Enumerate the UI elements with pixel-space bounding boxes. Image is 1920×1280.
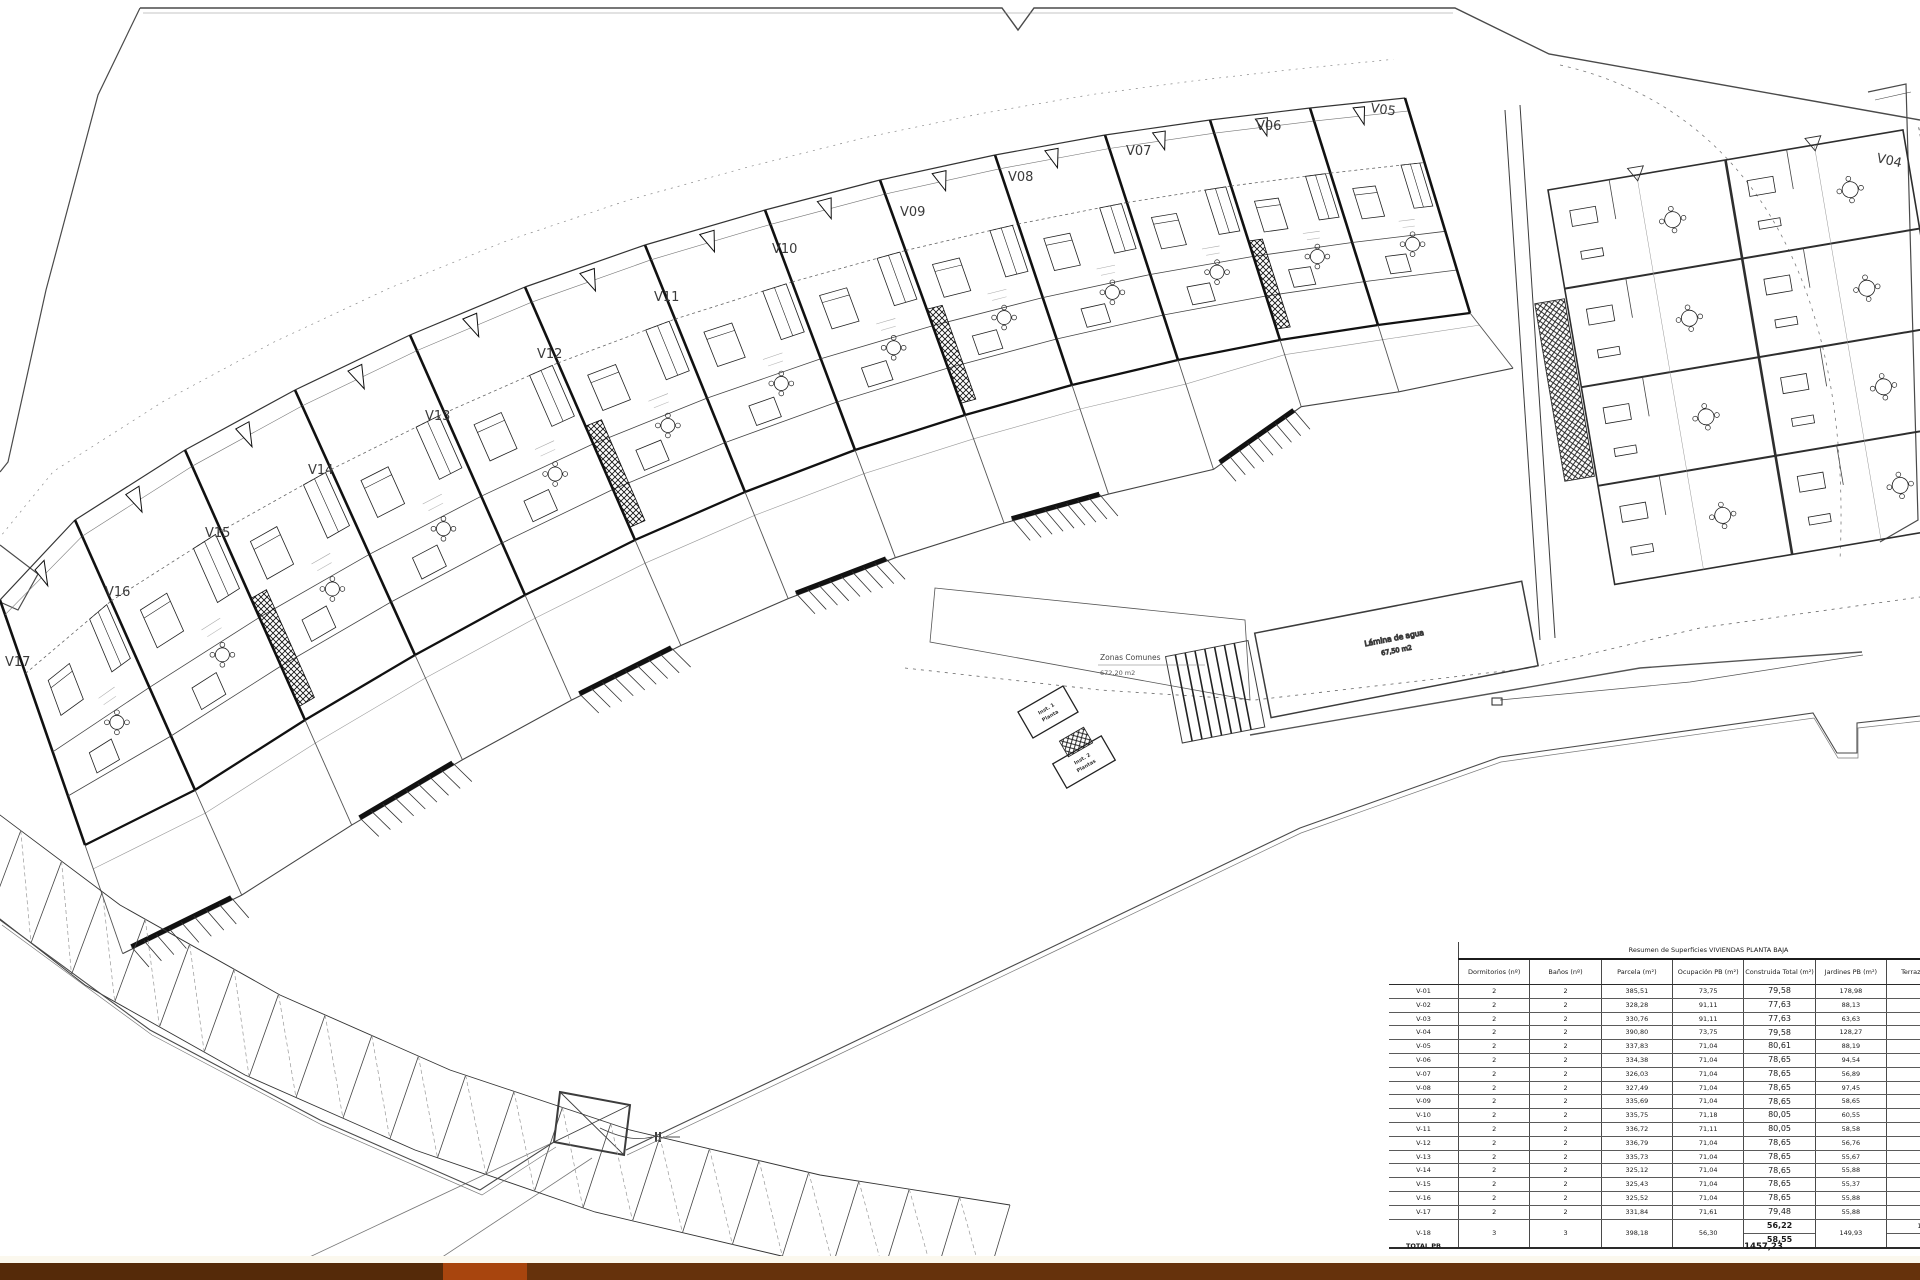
micro-text-hint xyxy=(1202,246,1220,249)
micro-text-hint xyxy=(312,553,331,564)
chair-glyph xyxy=(1849,198,1855,204)
table-row: V-08 2 2 327,49 71,04 78,65 97,45 - xyxy=(1389,1081,1920,1095)
table-row: V-03 2 2 330,76 91,11 77,63 63,63 - xyxy=(1389,1012,1920,1026)
bathroom-divider xyxy=(657,326,677,376)
bed-glyph xyxy=(48,663,83,715)
summary-table: Resumen de Superficies VIVIENDAS PLANTA … xyxy=(1389,942,1920,1249)
dining-table-glyph xyxy=(1406,237,1420,251)
micro-text-hint xyxy=(768,361,783,366)
bathroom-divider xyxy=(205,542,229,596)
chair-glyph xyxy=(330,577,335,582)
unit-street-wall xyxy=(1178,340,1280,360)
pergola-tick xyxy=(1294,410,1310,429)
bed-glyph xyxy=(1764,275,1792,295)
interior-wall xyxy=(593,398,707,444)
dining-table-glyph xyxy=(661,418,675,432)
dining-table-glyph xyxy=(1210,265,1224,279)
micro-text-hint xyxy=(1303,231,1320,233)
dining-table-glyph xyxy=(110,715,124,729)
pool-area-value: 67,50 m2 xyxy=(1381,644,1413,658)
parking-stall-divider xyxy=(782,1172,808,1256)
pergola-tick xyxy=(406,790,425,809)
micro-text-hint xyxy=(1097,265,1115,269)
sofa-glyph xyxy=(89,739,119,773)
chair-glyph xyxy=(1668,206,1674,212)
chair-glyph xyxy=(1685,305,1691,311)
parking-stall-divider xyxy=(633,1137,660,1221)
pergola-tick xyxy=(219,904,236,924)
micro-text-hint xyxy=(423,494,442,504)
chair-glyph xyxy=(451,526,456,531)
pergola-tick xyxy=(579,694,598,713)
entrance-arrow xyxy=(700,230,715,252)
bed-glyph xyxy=(1353,186,1385,219)
table-row: V-01 2 2 385,51 73,75 79,58 178,98 - xyxy=(1389,985,1920,999)
chair-glyph xyxy=(1879,373,1885,379)
dining-table-glyph xyxy=(774,376,788,390)
interior-wall xyxy=(53,687,150,752)
bathroom-divider xyxy=(888,255,905,302)
pergola-tick xyxy=(1034,513,1052,535)
bed-glyph xyxy=(1254,198,1288,232)
footer-bar-orange xyxy=(443,1263,527,1280)
pergola-tick xyxy=(395,797,414,816)
dining-table-glyph xyxy=(1891,476,1909,494)
stair-box-1: Inst. 1 Planta xyxy=(1018,686,1078,738)
interior-wall xyxy=(391,543,502,602)
footer-bar-right xyxy=(527,1263,1920,1280)
chair-glyph xyxy=(1862,275,1868,281)
chair-glyph xyxy=(1688,326,1694,332)
unit-street-wall xyxy=(965,385,1072,415)
interior-wall xyxy=(481,444,593,496)
party-wall xyxy=(1310,108,1378,325)
entrance-arrow xyxy=(463,313,479,336)
chair-glyph xyxy=(1012,315,1017,320)
table-row: V-07 2 2 326,03 71,04 78,65 56,89 - xyxy=(1389,1067,1920,1081)
chair-glyph xyxy=(992,315,997,320)
table-row: V-14 2 2 325,12 71,04 78,65 55,88 - xyxy=(1389,1164,1920,1178)
unit-street-wall xyxy=(745,450,855,492)
garden-divider xyxy=(1280,340,1301,407)
chair-glyph xyxy=(1002,325,1007,330)
chair-glyph xyxy=(891,355,896,360)
site-plan-page: { "plan": { "unit_labels": ["V04","V05",… xyxy=(0,0,1920,1280)
chair-glyph xyxy=(115,710,120,715)
sofa-glyph xyxy=(1775,316,1798,328)
stair-hatch xyxy=(251,590,314,707)
interior-wall xyxy=(1150,256,1253,274)
bed-glyph xyxy=(820,288,859,329)
unit-outer-wall xyxy=(185,390,295,450)
unit-street-wall xyxy=(855,415,965,450)
garden-divider xyxy=(85,845,123,954)
parking-stall-diagonal xyxy=(660,1137,683,1233)
bathroom-divider xyxy=(1215,188,1229,232)
right-apartment-block xyxy=(1515,119,1920,589)
interior-wall xyxy=(171,666,281,736)
parking-stall-divider xyxy=(390,1056,419,1139)
pergola-tick xyxy=(886,559,905,580)
garden-divider xyxy=(1470,313,1513,368)
pergola-tick xyxy=(648,659,667,678)
pergola-tick xyxy=(1229,456,1245,475)
parking-stall-divider xyxy=(71,892,102,975)
unit-label-v05: V05 xyxy=(1369,101,1396,119)
dining-table-glyph xyxy=(548,467,562,481)
pergola-tick xyxy=(1056,506,1074,528)
chair-glyph xyxy=(1837,189,1843,195)
parking-stall-divider xyxy=(296,1015,325,1098)
chair-glyph xyxy=(1697,314,1703,320)
bed-glyph xyxy=(1603,404,1631,424)
micro-text-hint xyxy=(99,687,115,698)
micro-text-hint xyxy=(1399,219,1415,221)
chair-glyph xyxy=(340,587,345,592)
unit-label-v17: V17 xyxy=(5,655,30,670)
interior-wall xyxy=(821,326,933,359)
micro-text-hint xyxy=(1101,272,1115,275)
micro-text-hint xyxy=(763,353,782,360)
chair-glyph xyxy=(1400,242,1405,247)
bathroom-glyph xyxy=(90,605,131,672)
interior-wall xyxy=(502,489,613,543)
bed-glyph xyxy=(361,467,405,518)
bed-pillow-line xyxy=(935,265,962,271)
bathroom-divider xyxy=(1410,164,1423,207)
interior-wall xyxy=(613,443,725,490)
sofa-glyph xyxy=(1631,544,1654,556)
party-wall xyxy=(0,600,85,845)
chair-glyph xyxy=(1705,425,1711,431)
garden-band xyxy=(85,313,1513,954)
chair-glyph xyxy=(1110,300,1115,305)
bed-pillow-line xyxy=(1355,192,1378,195)
pergola-tick xyxy=(875,563,894,584)
chair-glyph xyxy=(769,381,774,386)
dining-table-glyph xyxy=(1680,309,1698,327)
bathroom-divider xyxy=(98,612,121,665)
interior-wall xyxy=(281,602,391,666)
bathroom-divider xyxy=(541,370,563,421)
chair-glyph xyxy=(1887,484,1893,490)
unit-street-wall xyxy=(1072,360,1178,385)
pergola-beam xyxy=(579,648,671,694)
table-row: V-17 2 2 331,84 71,61 79,48 55,88 - xyxy=(1389,1205,1920,1219)
bathroom-divider xyxy=(1001,228,1017,274)
pergola-tick xyxy=(796,593,815,614)
dining-table-glyph xyxy=(997,311,1011,325)
site-boundary-lower xyxy=(0,920,554,1190)
chair-glyph xyxy=(220,642,225,647)
parking-stall-diagonal xyxy=(372,1035,390,1138)
pergola-tick xyxy=(360,818,379,837)
pergola-tick xyxy=(807,589,826,610)
table-row: V-13 2 2 335,73 71,04 78,65 55,67 - xyxy=(1389,1150,1920,1164)
parking-stall-diagonal xyxy=(418,1056,437,1158)
sofa-glyph xyxy=(412,545,446,579)
chair-glyph xyxy=(1315,244,1320,249)
pergola-tick xyxy=(418,783,437,802)
chair-glyph xyxy=(1899,493,1905,499)
chair-glyph xyxy=(1681,215,1687,221)
bed-pillow-line xyxy=(51,671,72,688)
table-body: V-01 2 2 385,51 73,75 79,58 178,98 - V-0… xyxy=(1389,985,1920,1220)
pergola-tick xyxy=(1099,494,1117,516)
parking-stall-diagonal xyxy=(562,1107,583,1207)
parking-stall-divider xyxy=(833,1181,859,1264)
party-wall xyxy=(995,155,1072,385)
zonas-comunes-area: 672,20 m2 xyxy=(1100,669,1135,677)
unit-label-v08: V08 xyxy=(1008,170,1033,185)
chair-glyph xyxy=(553,482,558,487)
chair-glyph xyxy=(563,472,568,477)
table-row: V-12 2 2 336,79 71,04 78,65 56,76 - xyxy=(1389,1136,1920,1150)
interior-wall xyxy=(1820,347,1827,386)
footer-cream-strip xyxy=(0,1256,1920,1263)
parking-stall-divider xyxy=(31,861,62,943)
interior-wall xyxy=(1803,248,1810,287)
unit-street-wall xyxy=(1378,313,1470,325)
chair-glyph xyxy=(543,472,548,477)
unit-label-v15: V15 xyxy=(205,526,230,541)
unit-label-v11: V11 xyxy=(654,290,679,305)
pergola-tick xyxy=(1257,436,1273,455)
table-row: V-16 2 2 325,52 71,04 78,65 55,88 - xyxy=(1389,1191,1920,1205)
table-row: V-09 2 2 335,69 71,04 78,65 58,65 - xyxy=(1389,1095,1920,1109)
unit-label-v10: V10 xyxy=(772,242,797,257)
interior-wall xyxy=(1266,282,1364,296)
micro-text-hint xyxy=(541,449,556,456)
pergola-tick xyxy=(591,688,610,707)
unit-street-wall xyxy=(305,655,415,720)
entrance-arrow xyxy=(1353,107,1364,125)
parking-stall-diagonal xyxy=(709,1149,732,1245)
micro-text-hint xyxy=(317,563,331,571)
micro-text-hint xyxy=(1307,238,1320,240)
sofa-glyph xyxy=(636,440,669,470)
sofa-glyph xyxy=(1758,218,1781,230)
pergola-tick xyxy=(206,910,223,930)
total-label: TOTAL PB xyxy=(1389,1242,1458,1250)
pergola-tick xyxy=(1088,497,1106,519)
unit-label-v06: V06 xyxy=(1256,119,1281,134)
sofa-glyph xyxy=(302,606,336,641)
bed-pillow-line xyxy=(1154,220,1179,224)
parking-stall-divider xyxy=(159,944,189,1027)
pergola-tick xyxy=(231,898,248,918)
parking-stall-diagonal xyxy=(514,1091,534,1191)
pergola-tick xyxy=(660,653,679,672)
pergola-tick xyxy=(1248,443,1264,462)
chair-glyph xyxy=(1672,228,1678,234)
dining-table-glyph xyxy=(1874,378,1892,396)
chair-glyph xyxy=(1896,472,1902,478)
parking-stall-diagonal xyxy=(62,861,72,974)
pergola-tick xyxy=(1275,423,1291,442)
garden-divider xyxy=(745,492,788,599)
chair-glyph xyxy=(1120,290,1125,295)
chair-glyph xyxy=(1659,219,1665,225)
micro-text-hint xyxy=(876,318,895,324)
chair-glyph xyxy=(1692,416,1698,422)
pergola-tick xyxy=(194,916,211,936)
pool-label: Lámina de agua xyxy=(1364,628,1425,648)
garden-divider xyxy=(965,415,1004,523)
table-row: V-15 2 2 325,43 71,04 78,65 55,37 - xyxy=(1389,1178,1920,1192)
chair-glyph xyxy=(115,730,120,735)
pergola-tick xyxy=(1023,516,1041,538)
pergola-tick xyxy=(625,671,644,690)
bed-pillow-line xyxy=(477,420,504,432)
bed-pillow-line xyxy=(591,372,619,383)
entrance-arrow xyxy=(580,268,596,291)
chair-glyph xyxy=(1215,280,1220,285)
chair-glyph xyxy=(1883,395,1889,401)
chair-glyph xyxy=(1908,481,1914,487)
chair-glyph xyxy=(789,381,794,386)
chair-glyph xyxy=(441,516,446,521)
table-row: V-04 2 2 390,80 73,75 79,58 128,27 - xyxy=(1389,1026,1920,1040)
micro-text-hint xyxy=(104,696,116,705)
parking-stall-divider xyxy=(682,1149,709,1233)
bathroom-divider xyxy=(315,479,339,532)
unit-outer-wall xyxy=(75,450,185,520)
chair-glyph xyxy=(1676,317,1682,323)
table-row: V-05 2 2 337,83 71,04 80,61 88,19 - xyxy=(1389,1040,1920,1054)
pergola-tick xyxy=(144,941,161,961)
parking-stall-divider xyxy=(0,831,21,912)
bed-glyph xyxy=(932,258,970,297)
chair-glyph xyxy=(1100,290,1105,295)
sofa-glyph xyxy=(524,489,558,521)
interior-wall xyxy=(1609,180,1616,219)
pergola-tick xyxy=(156,935,173,955)
chair-glyph xyxy=(1410,252,1415,257)
unit-street-wall xyxy=(85,790,195,845)
stair-hatch xyxy=(1249,239,1291,329)
unit-label-v09: V09 xyxy=(900,205,925,220)
interior-wall xyxy=(1253,243,1352,257)
party-wall xyxy=(295,390,415,655)
parking-stall-diagonal xyxy=(611,1124,633,1221)
unit-outer-wall xyxy=(410,287,525,335)
sofa-glyph xyxy=(1289,267,1316,288)
dining-table-glyph xyxy=(887,341,901,355)
sofa-glyph xyxy=(749,397,781,425)
chair-glyph xyxy=(1892,382,1898,388)
bathroom-divider xyxy=(427,421,450,473)
micro-text-hint xyxy=(207,628,221,637)
unit-street-wall xyxy=(1280,325,1378,340)
v18-construida-pb: 56,22 xyxy=(1744,1220,1814,1234)
unit-label-v04: V04 xyxy=(1875,151,1903,171)
parking-stall-diagonal xyxy=(279,994,296,1097)
interior-wall xyxy=(1787,150,1794,189)
micro-text-hint xyxy=(428,503,443,511)
parking-stall-diagonal xyxy=(466,1075,486,1174)
parking-stall-diagonal xyxy=(809,1172,833,1264)
chair-glyph xyxy=(1410,232,1415,237)
unit-street-wall xyxy=(195,720,305,790)
micro-text-hint xyxy=(881,326,896,330)
crossed-square-marker xyxy=(250,1092,652,1280)
chair-glyph xyxy=(1853,287,1859,293)
unit-street-wall xyxy=(525,540,635,595)
table-header-row: Dormitorios (nº) Baños (nº) Parcela (m²)… xyxy=(1389,959,1920,985)
interior-wall xyxy=(369,496,481,554)
parking-stall-divider xyxy=(249,994,278,1077)
bed-glyph xyxy=(1586,305,1614,325)
unit-outer-wall xyxy=(0,520,75,600)
pergola-tick xyxy=(169,928,186,948)
sofa-glyph xyxy=(972,330,1003,355)
interior-wall xyxy=(933,298,1043,326)
pergola-tick xyxy=(863,567,882,588)
parking-stall-diagonal xyxy=(234,969,249,1077)
chair-glyph xyxy=(320,587,325,592)
micro-text-hint xyxy=(202,618,221,630)
parking-stall-diagonal xyxy=(21,831,31,943)
garden-divider xyxy=(1178,360,1213,469)
dining-table-glyph xyxy=(1310,250,1324,264)
entrance-arrow xyxy=(236,422,252,447)
micro-text-hint xyxy=(648,394,667,402)
chair-glyph xyxy=(666,433,671,438)
parking-stall-diagonal xyxy=(190,944,204,1052)
surface-summary-table: Resumen de Superficies VIVIENDAS PLANTA … xyxy=(1389,942,1920,1249)
pergola-tick xyxy=(637,665,656,684)
parking-inner-edge xyxy=(0,800,1010,1205)
dining-table-glyph xyxy=(436,522,450,536)
pergola-tick xyxy=(1238,449,1254,468)
chair-glyph xyxy=(220,662,225,667)
bed-glyph xyxy=(1781,374,1809,394)
parking-stall-diagonal xyxy=(102,892,114,1002)
bed-pillow-line xyxy=(144,601,170,618)
stair-hatch xyxy=(586,420,645,528)
entrance-arrow xyxy=(1045,148,1058,167)
site-boundary xyxy=(0,8,1920,610)
dining-table-glyph xyxy=(1105,285,1119,299)
table-title-row: Resumen de Superficies VIVIENDAS PLANTA … xyxy=(1389,942,1920,959)
interior-wall xyxy=(1043,275,1151,298)
bed-glyph xyxy=(1620,502,1648,522)
chair-glyph xyxy=(1846,176,1852,182)
pergola-tick xyxy=(852,572,871,593)
chair-glyph xyxy=(1870,386,1876,392)
dining-table-glyph xyxy=(1841,180,1859,198)
pergola-tick xyxy=(453,763,472,782)
chair-glyph xyxy=(1875,284,1881,290)
pergola-tick xyxy=(602,682,621,701)
micro-text-hint xyxy=(1206,253,1219,255)
site-boundary-lower-offset xyxy=(2,925,556,1195)
garden-divider xyxy=(525,595,572,700)
unit-label-v14: V14 xyxy=(308,463,333,478)
pergola-tick xyxy=(841,576,860,597)
chair-glyph xyxy=(1709,514,1715,520)
bed-pillow-line xyxy=(822,295,849,303)
total-construida-value: 1457,23 xyxy=(1721,1242,1806,1252)
parking-stall-diagonal xyxy=(759,1161,782,1257)
unit-label-v13: V13 xyxy=(425,409,450,424)
unit-street-wall xyxy=(415,595,525,655)
table-title: Resumen de Superficies VIVIENDAS PLANTA … xyxy=(1459,942,1920,959)
pergola-tick xyxy=(1285,417,1301,436)
bed-glyph xyxy=(1747,176,1775,196)
table-row: V-10 2 2 335,75 71,18 80,05 60,55 - xyxy=(1389,1109,1920,1123)
